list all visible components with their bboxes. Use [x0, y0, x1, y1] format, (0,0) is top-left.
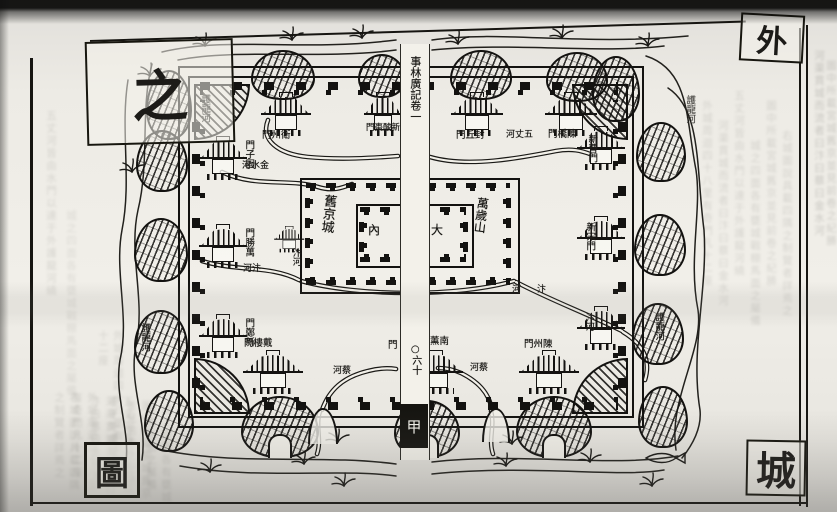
- title-plate-top-left: 之: [85, 38, 236, 146]
- spine-book-title: 事林廣記卷一: [409, 56, 421, 122]
- title-character-tu: 圖: [95, 446, 129, 495]
- bastion-mound: [634, 214, 686, 276]
- spine-folio-number: ○六十: [409, 344, 420, 375]
- river-label-bian-exit: 河汴: [512, 286, 562, 296]
- gate-label-nanxun-left: 門: [388, 341, 398, 351]
- gate-label-xinsong: 新宋門: [584, 222, 594, 251]
- gate-label-chenqiao: 門橋陳: [548, 130, 577, 140]
- gate-tower-xinzheng: [202, 314, 244, 362]
- river-label-wuzhang: 河丈五: [506, 131, 533, 141]
- book-fold-strip: 事林廣記卷一 ○六十 甲: [400, 44, 430, 460]
- palace-battlement-east: [460, 212, 468, 256]
- gate-tower-chenzhou: [522, 350, 576, 400]
- river-label-bian-inner: 汴河: [290, 248, 300, 266]
- river-label-bian-entry: 河汴: [243, 265, 261, 275]
- river-label-cai-west: 河蔡: [333, 367, 351, 377]
- palace-battlement-west: [359, 212, 367, 256]
- palace-label-nei: 內: [368, 224, 380, 237]
- title-plate-bottom-right: 城: [746, 439, 807, 496]
- gate-label-xincao: 新曹門: [586, 134, 596, 163]
- old-city-battlement-east: [503, 188, 511, 280]
- palace-label-da: 大: [431, 224, 443, 237]
- moat-label-ne: 護龍河: [684, 95, 694, 124]
- bastion-mound: [638, 386, 688, 448]
- barbican-south-west: [241, 396, 319, 458]
- river-label-bian-exit-vertical: 汴河: [583, 313, 593, 331]
- moat-label-se: 護龍河: [653, 312, 663, 341]
- bastion-mound: [636, 122, 686, 182]
- frame-left-border: [30, 58, 33, 506]
- gate-label-weizhou: 門州衛: [262, 131, 291, 141]
- title-plate-top-right: 外: [739, 12, 805, 63]
- gate-tower-guzi: [202, 136, 244, 184]
- river-label-cai-east: 河蔡: [470, 364, 488, 374]
- spine-section-marker: 甲: [400, 404, 428, 448]
- gate-label-xinsuanzao: 門棗酸新: [366, 124, 400, 133]
- title-character-cheng: 城: [755, 439, 796, 498]
- gate-label-wansheng: 門勝萬: [243, 228, 253, 257]
- barbican-south-east: [516, 396, 592, 458]
- gate-label-nanxun-right: 薰南: [430, 337, 449, 347]
- title-plate-bottom-left: 圖: [84, 442, 140, 498]
- barbican-arch: [542, 434, 566, 458]
- title-character-zhi: 之: [131, 51, 189, 133]
- moat-label-sw: 護龍河: [139, 323, 149, 352]
- river-label-jinshui: 河水金: [242, 162, 269, 172]
- frame-bottom-border: [30, 502, 806, 504]
- gate-label-fengqiu: 門丘封: [456, 131, 485, 141]
- gate-tower-wansheng: [202, 224, 244, 272]
- gate-label-chenzhou: 門州陳: [524, 340, 553, 350]
- barbican-arch: [268, 434, 292, 458]
- gate-label-dailou: 門樓戴: [244, 339, 273, 349]
- old-capital-city-label: 舊京城: [318, 193, 336, 233]
- gate-tower-dailou: [246, 350, 300, 400]
- bastion-mound: [144, 390, 194, 452]
- frame-right-border: [799, 28, 801, 506]
- title-character-wai: 外: [755, 15, 788, 62]
- scanned-book-page: 外城周迴四十八里有奇門凡十二座 河渠貫城而流者曰汴曰蔡曰金水河 五丈河皆由水門以…: [0, 0, 837, 512]
- old-city-battlement-west: [305, 188, 313, 280]
- frame-right-outer-border: [806, 25, 808, 507]
